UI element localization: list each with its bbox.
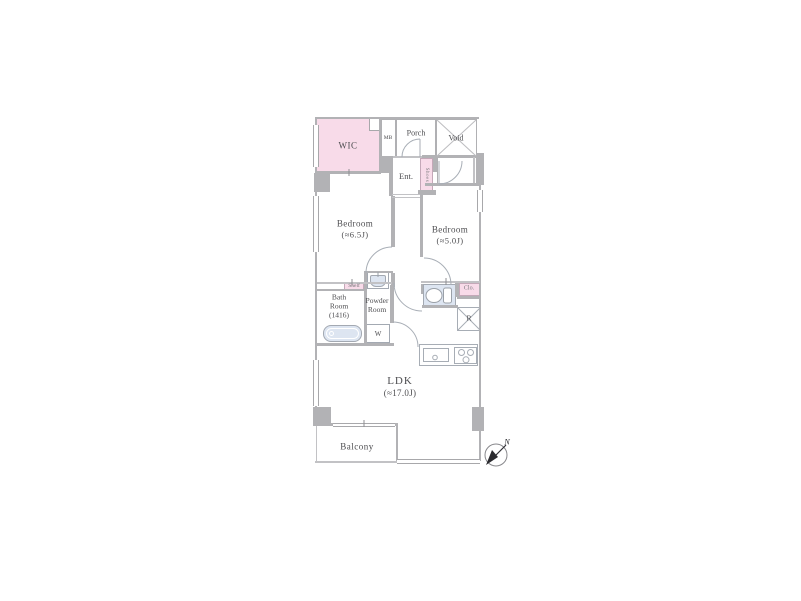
powder-room-label: Powder Room — [366, 297, 389, 315]
refrigerator-label: R — [466, 315, 471, 324]
bathroom-label: Bath Room (1416) — [329, 294, 349, 321]
north-label: N — [504, 437, 509, 446]
balcony-label: Balcony — [340, 442, 374, 453]
bedroom-second-label: Bedroom (≈5.0J) — [432, 225, 468, 246]
sink-drain-icon — [433, 355, 438, 360]
toilet-icon — [426, 288, 452, 303]
plan-linework — [0, 0, 801, 601]
void-label: Void — [449, 133, 464, 142]
wic-label: WIC — [339, 141, 358, 152]
closet-label: Clo. — [464, 285, 474, 292]
floor-plan: WIC MB Porch Void Ent. Shoes Bedroom (≈6… — [0, 0, 801, 601]
shoes-label: Shoes — [423, 168, 429, 182]
meter-box-label: MB — [384, 135, 393, 141]
porch-label: Porch — [407, 128, 426, 137]
tub-drain-icon — [330, 332, 334, 336]
washer-label: W — [375, 330, 382, 338]
burners-icon — [459, 350, 474, 363]
entrance-label: Ent. — [399, 171, 413, 181]
bedroom-main-label: Bedroom (≈6.5J) — [337, 219, 373, 240]
ldk-label: LDK (≈17.0J) — [384, 375, 417, 399]
compass-icon — [485, 444, 507, 466]
shelf-label: Shelf — [348, 283, 360, 289]
